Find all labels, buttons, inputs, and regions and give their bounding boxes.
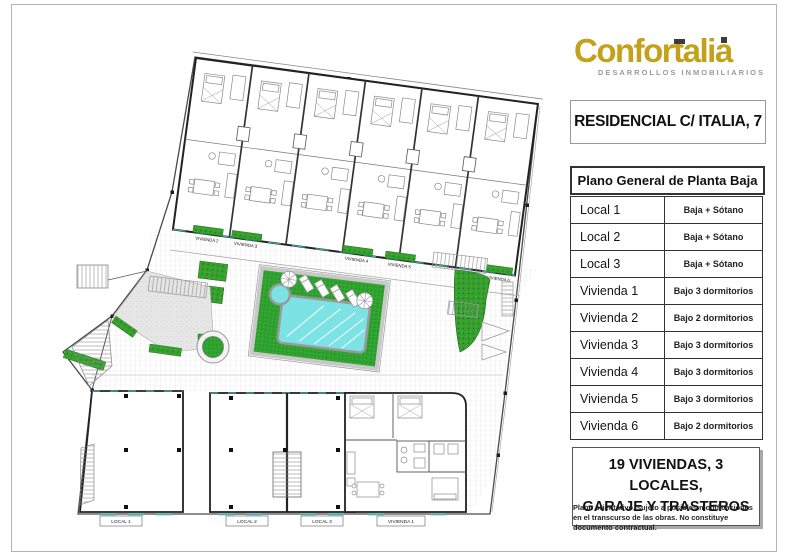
local-2-3 [210, 393, 355, 512]
local1-stairs [80, 444, 94, 505]
units-table: Local 1Baja + Sótano Local 2Baja + Sótan… [570, 196, 763, 440]
unit-desc: Baja + Sótano [665, 251, 763, 278]
logo-accent-t [674, 39, 685, 44]
label-local-3: LOCAL 3 [312, 519, 332, 525]
units-table-title-box: Plano General de Planta Baja [570, 166, 765, 195]
unit-name: Local 2 [571, 224, 665, 251]
exterior-stair [77, 265, 108, 288]
disclaimer: Plano orientativo, sujeto a posibles mod… [573, 503, 759, 533]
table-row: Vivienda 2Bajo 2 dormitorios [571, 305, 763, 332]
unit-desc: Bajo 3 dormitorios [665, 332, 763, 359]
table-row: Vivienda 1Bajo 3 dormitorios [571, 278, 763, 305]
round-planter [197, 331, 229, 363]
table-row: Vivienda 4Bajo 3 dormitorios [571, 359, 763, 386]
floor-plan: VIVIENDA 2 VIVIENDA 3 VIVIENDA 4 VIVIEND… [0, 0, 567, 557]
unit-desc: Bajo 3 dormitorios [665, 278, 763, 305]
table-row: Local 3Baja + Sótano [571, 251, 763, 278]
unit-desc: Baja + Sótano [665, 197, 763, 224]
unit-desc: Bajo 3 dormitorios [665, 359, 763, 386]
side-stair [502, 282, 513, 316]
project-title-box: RESIDENCIAL C/ ITALIA, 7 [570, 100, 766, 144]
unit-name: Vivienda 6 [571, 413, 665, 440]
brand-name: Confortalia [574, 34, 766, 67]
table-row: Vivienda 3Bajo 3 dormitorios [571, 332, 763, 359]
unit-name: Vivienda 3 [571, 332, 665, 359]
unit-name: Vivienda 5 [571, 386, 665, 413]
table-row: Local 1Baja + Sótano [571, 197, 763, 224]
unit-name: Vivienda 1 [571, 278, 665, 305]
brand-logo: Confortalia DESARROLLOS INMOBILIARIOS [574, 34, 766, 82]
planting-bed [198, 261, 228, 281]
unit-desc: Bajo 2 dormitorios [665, 413, 763, 440]
unit-desc: Bajo 2 dormitorios [665, 305, 763, 332]
label-local-2: LOCAL 2 [237, 519, 257, 525]
unit-desc: Bajo 3 dormitorios [665, 386, 763, 413]
vivienda-1-unit [345, 393, 466, 512]
table-row: Vivienda 6Bajo 2 dormitorios [571, 413, 763, 440]
label-vivienda-1: VIVIENDA 1 [388, 519, 414, 525]
label-local-1: LOCAL 1 [111, 519, 131, 525]
pool-garden [248, 265, 390, 372]
project-title: RESIDENCIAL C/ ITALIA, 7 [574, 113, 762, 131]
table-row: Local 2Baja + Sótano [571, 224, 763, 251]
unit-name: Vivienda 2 [571, 305, 665, 332]
unit-name: Vivienda 4 [571, 359, 665, 386]
unit-desc: Baja + Sótano [665, 224, 763, 251]
info-panel: Confortalia DESARROLLOS INMOBILIARIOS RE… [570, 0, 770, 557]
logo-accent-i-dot [721, 37, 727, 43]
table-row: Vivienda 5Bajo 3 dormitorios [571, 386, 763, 413]
unit-name: Local 1 [571, 197, 665, 224]
bottom-unit-labels: LOCAL 1 LOCAL 2 LOCAL 3 VIVIENDA 1 [100, 516, 425, 526]
units-table-title: Plano General de Planta Baja [578, 173, 758, 188]
unit-name: Local 3 [571, 251, 665, 278]
local-1 [80, 391, 183, 512]
brand-tagline: DESARROLLOS INMOBILIARIOS [574, 68, 766, 77]
summary-line-1: 19 VIVIENDAS, 3 LOCALES, [575, 455, 757, 497]
